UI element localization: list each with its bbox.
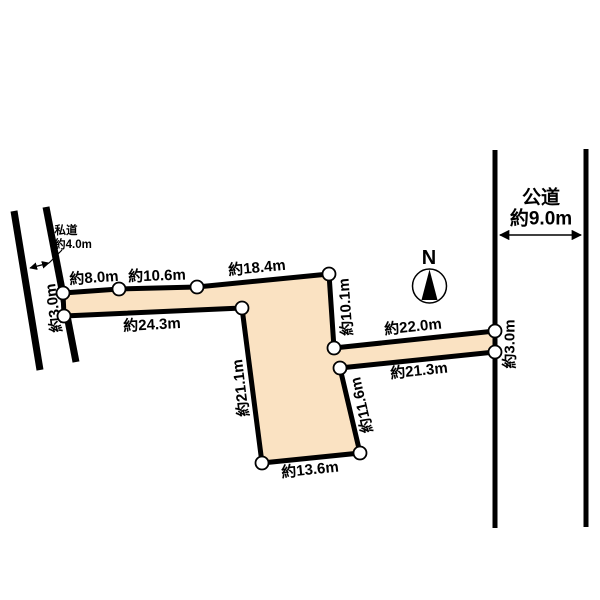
public-road-width: 約9.0m	[510, 207, 572, 230]
private-road-width-arrow	[30, 263, 49, 268]
dim-top-1: 約8.0m	[69, 267, 119, 288]
vertex-marker	[489, 325, 502, 338]
compass: N	[413, 247, 447, 303]
public-road-name: 公道	[522, 186, 560, 209]
diagram-svg: 私道 約4.0m 公道 約9.0m 約8.0m 約10.6m 約18.4m 約2…	[0, 0, 600, 600]
dim-top-2: 約10.6m	[128, 266, 186, 286]
vertex-marker	[489, 346, 502, 359]
vertex-marker	[236, 302, 249, 315]
vertex-marker	[58, 310, 71, 323]
vertex-marker	[354, 447, 367, 460]
dim-right-frontage: 約3.0m	[501, 319, 519, 368]
vertex-marker	[191, 281, 204, 294]
vertex-marker	[256, 457, 269, 470]
vertex-marker	[323, 268, 336, 281]
vertex-marker	[57, 287, 70, 300]
dim-right-arm-top: 約22.0m	[383, 315, 442, 339]
private-road-left-line	[14, 211, 40, 370]
vertex-marker	[328, 342, 341, 355]
vertex-marker	[334, 362, 347, 375]
land-plot-diagram: 私道 約4.0m 公道 約9.0m 約8.0m 約10.6m 約18.4m 約2…	[0, 0, 600, 600]
private-road-width: 約4.0m	[54, 237, 92, 251]
vertex-marker	[113, 283, 126, 296]
dim-upper-right-side: 約10.1m	[335, 278, 357, 337]
north-label: N	[422, 247, 436, 269]
private-road-name: 私道	[55, 223, 78, 237]
dim-top-3: 約18.4m	[227, 256, 286, 279]
dim-left-arm-bottom: 約24.3m	[123, 314, 181, 335]
